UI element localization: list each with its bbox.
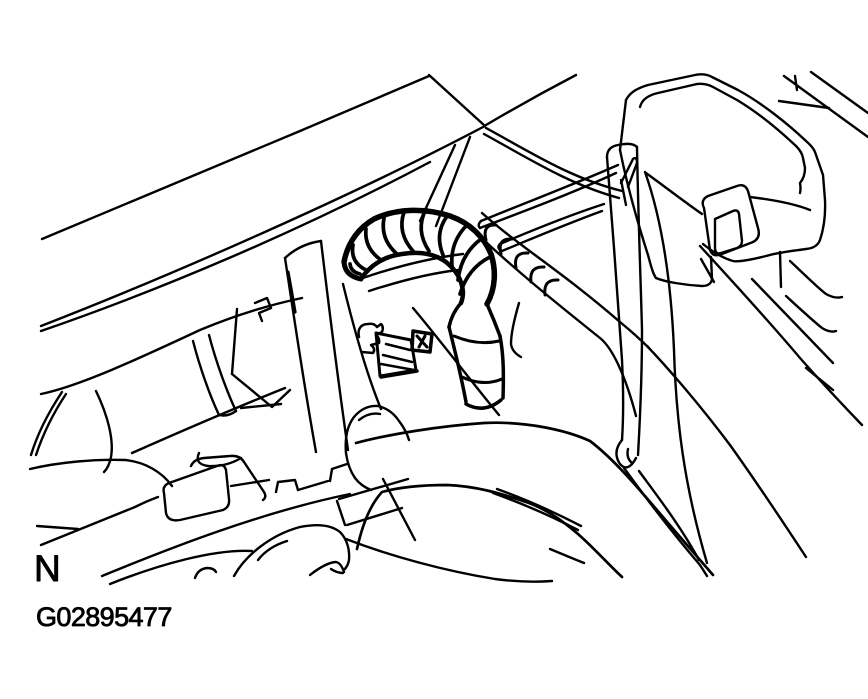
svg-text:N: N xyxy=(34,548,61,589)
svg-text:G02895477: G02895477 xyxy=(36,602,172,632)
